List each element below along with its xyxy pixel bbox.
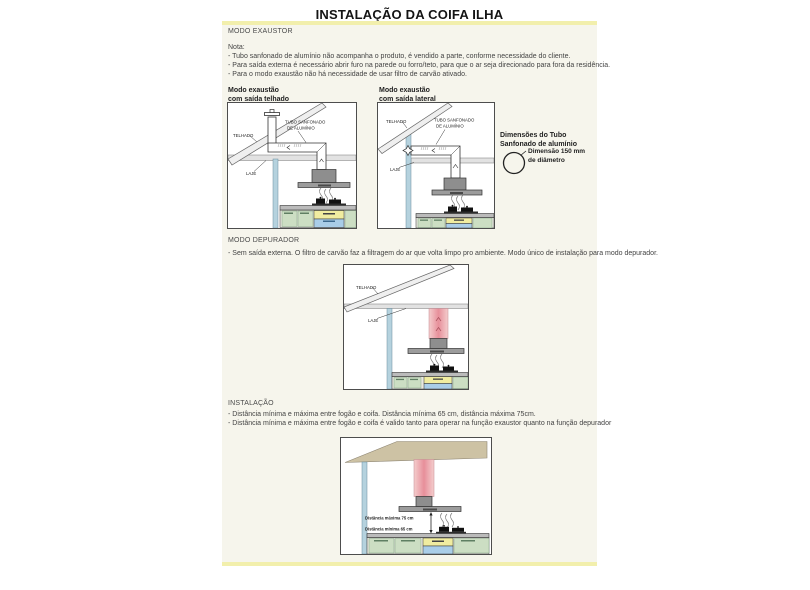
diagram-side-exit: TELHADO TUBO SANFONADO DE ALUMÍNIO LAJE — [377, 102, 495, 229]
wall-column — [362, 462, 367, 554]
bottom-accent-bar — [222, 562, 597, 566]
hood — [408, 339, 464, 354]
diagram-depurador-drawing: TELHADO LAJE — [344, 265, 468, 389]
note-line: - Distância mínima e máxima entre fogão … — [228, 410, 611, 419]
hood — [432, 178, 482, 195]
stove-pots — [312, 197, 346, 206]
nota-label: Nota: — [228, 43, 245, 52]
note-line: - Tubo sanfonado de alumínio não acompan… — [228, 52, 610, 61]
note-line: - Para saída externa é necessário abrir … — [228, 61, 610, 70]
wall-column — [387, 309, 392, 390]
heading-depurador: MODO DEPURADOR — [228, 237, 299, 244]
manual-sheet: MODO EXAUSTOR Nota: - Tubo sanfonado de … — [222, 21, 597, 566]
depurador-note: - Sem saída externa. O filtro de carvão … — [228, 249, 658, 258]
distance-max-label: Distância máxima 75 cm — [365, 516, 414, 521]
kitchen-counter — [392, 373, 468, 390]
wall-column — [273, 159, 278, 228]
tube-diameter-circle — [504, 153, 525, 174]
kitchen-counter — [280, 206, 356, 228]
kitchen-counter — [416, 214, 494, 229]
stove-pots — [436, 525, 466, 534]
heading-exaustor: MODO EXAUSTOR — [228, 28, 293, 35]
diagram-side-title-line1: Modo exaustão — [379, 87, 436, 96]
diagram-side-exit-drawing: TELHADO TUBO SANFONADO DE ALUMÍNIO LAJE — [378, 103, 494, 228]
laje-label: LAJE — [390, 167, 400, 172]
tubo-label-line2: DE ALUMÍNIO — [436, 124, 464, 129]
recirculation-duct — [429, 309, 448, 339]
diagram-roof-title-line1: Modo exaustão — [228, 87, 289, 96]
instalacao-notes: - Distância mínima e máxima entre fogão … — [228, 410, 611, 428]
tubo-label-line2: DE ALUMÍNIO — [287, 126, 315, 131]
stove-pots — [426, 364, 458, 373]
diagram-roof-exit: TELHADO TUBO SANFONADO DE ALUMÍNIO LAJE — [227, 102, 357, 229]
telhado-label: TELHADO — [386, 119, 407, 124]
tube-dim-title-line1: Dimensões do Tubo — [500, 131, 566, 140]
diagram-labels: TELHADO TUBO SANFONADO DE ALUMÍNIO LAJE — [386, 118, 475, 173]
distance-labels: Distância máxima 75 cm Distância mínima … — [365, 516, 414, 532]
distance-arrow — [429, 512, 432, 534]
manual-page: INSTALAÇÃO DA COIFA ILHA MODO EXAUSTOR N… — [0, 0, 810, 590]
kitchen-counter — [367, 534, 489, 555]
note-line: - Distância mínima e máxima entre fogão … — [228, 419, 611, 428]
diagram-distances: Distância máxima 75 cm Distância mínima … — [340, 437, 492, 555]
telhado-label: TELHADO — [233, 133, 254, 138]
wall-column — [406, 131, 411, 228]
tubo-label-line1: TUBO SANFONADO — [285, 120, 326, 125]
tubo-label-line1: TUBO SANFONADO — [434, 118, 475, 123]
hood — [399, 497, 461, 512]
tube-dim-value-line2: de diâmetro — [528, 156, 565, 165]
exaustor-notes: - Tubo sanfonado de alumínio não acompan… — [228, 52, 610, 79]
laje-label: LAJE — [246, 171, 256, 176]
diagram-distances-drawing: Distância máxima 75 cm Distância mínima … — [341, 438, 491, 554]
hood — [298, 170, 350, 188]
stove-pots — [444, 205, 478, 214]
diagram-roof-exit-drawing: TELHADO TUBO SANFONADO DE ALUMÍNIO LAJE — [228, 103, 356, 228]
laje-label: LAJE — [368, 318, 378, 323]
recirculation-duct — [414, 460, 434, 497]
distance-min-label: Distância mínima 65 cm — [365, 527, 413, 532]
note-line: - Para o modo exaustão não há necessidad… — [228, 70, 610, 79]
top-accent-bar — [222, 21, 597, 25]
diagram-depurador: TELHADO LAJE — [343, 264, 469, 390]
page-title: INSTALAÇÃO DA COIFA ILHA — [222, 7, 597, 22]
callout-leader-line — [521, 151, 527, 156]
heading-instalacao: INSTALAÇÃO — [228, 400, 274, 407]
tube-dim-value-line1: Dimensão 150 mm — [528, 147, 585, 156]
steam — [441, 513, 454, 528]
